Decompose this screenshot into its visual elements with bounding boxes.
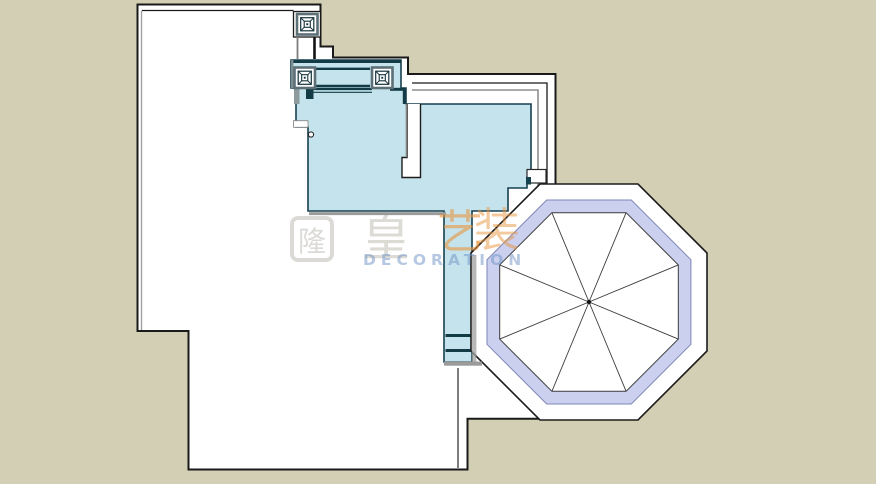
column-symbol-top <box>297 14 318 35</box>
wall-stub-gray <box>294 88 300 104</box>
octagon-apex-point <box>587 300 591 304</box>
watermark-logo-char: 隆 <box>298 225 326 258</box>
column-shadow-base <box>444 362 482 366</box>
column-symbol-beam-left <box>295 68 316 89</box>
wall-stub-dark <box>306 88 314 99</box>
column-symbol-beam-right <box>372 68 393 89</box>
watermark-char-3: 装 <box>474 203 520 257</box>
floor-plan-viewport: 隆 皇 艺 装 DECORATION <box>0 0 876 484</box>
watermark-latin-text: DECORATION <box>363 251 526 269</box>
column-shadow-vertical <box>472 255 477 363</box>
pipe-penetration <box>308 132 313 137</box>
floor-plan-canvas[interactable]: 隆 皇 艺 装 DECORATION <box>0 0 876 484</box>
pier-stub <box>526 177 531 185</box>
left-edge-notch <box>294 121 309 128</box>
